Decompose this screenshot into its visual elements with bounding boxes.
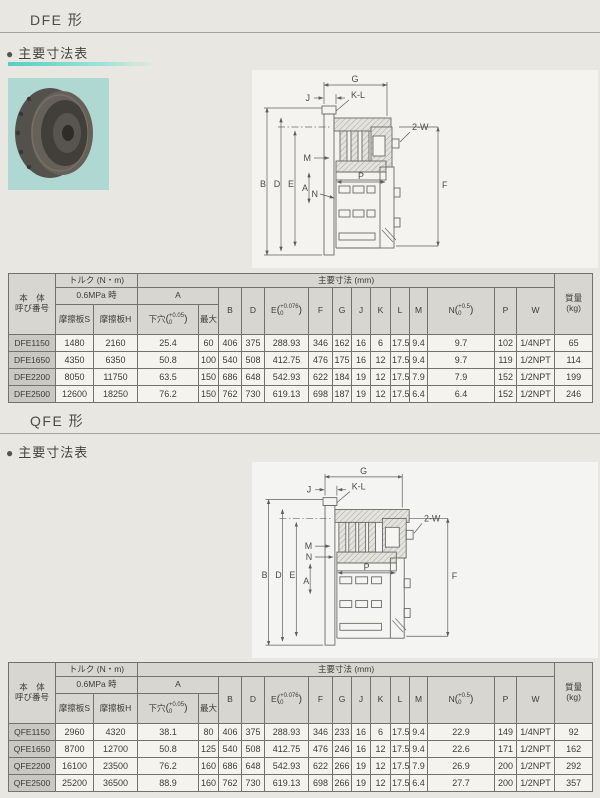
- dimension-value-cell: 7.9: [410, 758, 428, 775]
- dimension-value-cell: 16100: [56, 758, 94, 775]
- table-header: 本 体呼び番号 トルク (N・m) 主要寸法 (mm) 質量(kg) 0.6MP…: [9, 274, 593, 335]
- col-header-f: F: [309, 288, 333, 335]
- col-header-w: W: [517, 677, 555, 724]
- dimension-value-cell: 1/2NPT: [517, 775, 555, 792]
- col-header-n: N(+0.50): [428, 288, 495, 335]
- col-header-e: E(+0.0760): [265, 677, 309, 724]
- bullet-icon: ●: [6, 446, 14, 460]
- dimension-value-cell: 6.4: [410, 775, 428, 792]
- dimension-value-cell: 23500: [94, 758, 138, 775]
- dimension-value-cell: 152: [495, 386, 517, 403]
- dimension-value-cell: 11750: [94, 369, 138, 386]
- col-header-e: E(+0.0760): [265, 288, 309, 335]
- dimension-value-cell: 622: [309, 369, 333, 386]
- dimension-value-cell: 19: [352, 758, 371, 775]
- model-number-cell: DFE2500: [9, 386, 56, 403]
- table-row: QFE2200161002350076.2160686648542.936222…: [9, 758, 593, 775]
- col-header-b: B: [219, 288, 242, 335]
- dimension-value-cell: 508: [242, 352, 265, 369]
- dimension-value-cell: 25200: [56, 775, 94, 792]
- dimension-value-cell: 6: [371, 335, 391, 352]
- col-header-j: J: [352, 288, 371, 335]
- dimension-value-cell: 92: [555, 724, 593, 741]
- col-header-w: W: [517, 288, 555, 335]
- dim-label-p: P: [358, 171, 364, 181]
- dimension-value-cell: 9.4: [410, 352, 428, 369]
- dimension-value-cell: 2960: [56, 724, 94, 741]
- model-number-cell: QFE1150: [9, 724, 56, 741]
- dimension-value-cell: 12: [371, 775, 391, 792]
- table-row: DFE16504350635050.8100540508412.75476175…: [9, 352, 593, 369]
- dimension-value-cell: 6: [371, 724, 391, 741]
- dimension-value-cell: 200: [495, 758, 517, 775]
- dimension-value-cell: 50.8: [138, 741, 199, 758]
- dimension-value-cell: 508: [242, 741, 265, 758]
- dimension-value-cell: 27.7: [428, 775, 495, 792]
- dimension-value-cell: 12: [371, 758, 391, 775]
- col-header-j: J: [352, 677, 371, 724]
- part-outline: [278, 106, 400, 255]
- dimension-value-cell: 12: [371, 386, 391, 403]
- dimension-value-cell: 150: [199, 386, 219, 403]
- col-header-max: 最大: [199, 694, 219, 724]
- dimension-value-cell: 175: [333, 352, 352, 369]
- qfe-subheading-label: 主要寸法表: [18, 445, 88, 460]
- dimension-value-cell: 12600: [56, 386, 94, 403]
- dfe-drawing-svg: G J K-L 2-W M B D E A N P F: [252, 70, 598, 268]
- dim-label-2w: 2-W: [424, 513, 441, 523]
- dimension-value-cell: 412.75: [265, 741, 309, 758]
- dimension-value-cell: 7.9: [428, 369, 495, 386]
- col-header-model: 本 体呼び番号: [9, 663, 56, 724]
- table-row: QFE165087001270050.8125540508412.7547624…: [9, 741, 593, 758]
- dim-label-g: G: [360, 466, 367, 476]
- dimension-value-cell: 406: [219, 335, 242, 352]
- table-row: QFE2500252003650088.9160762730619.136982…: [9, 775, 593, 792]
- section-divider: [0, 32, 600, 33]
- table-row: DFE2500126001825076.2150762730619.136981…: [9, 386, 593, 403]
- dimension-value-cell: 540: [219, 352, 242, 369]
- dimension-value-cell: 100: [199, 352, 219, 369]
- dimension-value-cell: 698: [309, 775, 333, 792]
- table-header: 本 体呼び番号 トルク (N・m) 主要寸法 (mm) 質量(kg) 0.6MP…: [9, 663, 593, 724]
- dim-label-m: M: [304, 153, 312, 163]
- dimension-value-cell: 357: [555, 775, 593, 792]
- dimension-value-cell: 16: [352, 724, 371, 741]
- qfe-drawing-svg: G J K-L 2-W M N B D E A P F: [252, 462, 598, 658]
- table-row: QFE11502960432038.180406375288.933462331…: [9, 724, 593, 741]
- dimension-value-cell: 88.9: [138, 775, 199, 792]
- col-header-mass: 質量(kg): [555, 274, 593, 335]
- dfe-dimension-table: 本 体呼び番号 トルク (N・m) 主要寸法 (mm) 質量(kg) 0.6MP…: [8, 273, 593, 403]
- dim-label-n: N: [312, 189, 319, 199]
- dimension-value-cell: 1/2NPT: [517, 758, 555, 775]
- dimension-value-cell: 375: [242, 335, 265, 352]
- col-header-l: L: [391, 677, 410, 724]
- dimension-value-cell: 476: [309, 352, 333, 369]
- dimension-value-cell: 9.4: [410, 335, 428, 352]
- col-group-a: A: [138, 677, 219, 694]
- dim-label-n: N: [306, 552, 312, 562]
- dimension-value-cell: 17.5: [391, 758, 410, 775]
- dfe-dimension-drawing: G J K-L 2-W M B D E A N P F: [252, 70, 598, 268]
- dimension-value-cell: 17.5: [391, 775, 410, 792]
- qfe-dimension-table: 本 体呼び番号 トルク (N・m) 主要寸法 (mm) 質量(kg) 0.6MP…: [8, 662, 593, 792]
- dimension-value-cell: 150: [199, 369, 219, 386]
- model-number-cell: DFE2200: [9, 369, 56, 386]
- col-header-d: D: [242, 288, 265, 335]
- dimension-value-cell: 266: [333, 758, 352, 775]
- table-row: DFE11501480216025.460406375288.933461621…: [9, 335, 593, 352]
- dimension-value-cell: 16: [352, 352, 371, 369]
- dim-label-kl: K-L: [351, 90, 365, 100]
- dimension-value-cell: 233: [333, 724, 352, 741]
- dimension-value-cell: 80: [199, 724, 219, 741]
- col-header-friction-h: 摩擦板H: [94, 694, 138, 724]
- dimension-value-cell: 114: [555, 352, 593, 369]
- bullet-icon: ●: [6, 47, 14, 61]
- dimension-value-cell: 648: [242, 369, 265, 386]
- dimension-value-cell: 162: [333, 335, 352, 352]
- col-header-k: K: [371, 677, 391, 724]
- col-header-b: B: [219, 677, 242, 724]
- dimension-value-cell: 17.5: [391, 724, 410, 741]
- dimension-value-cell: 19: [352, 369, 371, 386]
- dimension-value-cell: 686: [219, 758, 242, 775]
- dimension-value-cell: 288.93: [265, 724, 309, 741]
- col-header-friction-s: 摩擦板S: [56, 305, 94, 335]
- clutch-photo-image: [8, 78, 109, 190]
- qfe-section-title: QFE 形: [30, 411, 84, 431]
- col-header-mass: 質量(kg): [555, 663, 593, 724]
- dfe-subheading-label: 主要寸法表: [18, 46, 88, 61]
- dimension-value-cell: 17.5: [391, 352, 410, 369]
- dimension-value-cell: 648: [242, 758, 265, 775]
- dim-label-m: M: [305, 541, 312, 551]
- dimension-value-cell: 149: [495, 724, 517, 741]
- dimension-value-cell: 346: [309, 724, 333, 741]
- dimension-value-cell: 1/2NPT: [517, 741, 555, 758]
- dimension-value-cell: 152: [495, 369, 517, 386]
- dimension-value-cell: 12: [371, 741, 391, 758]
- teal-underline: [8, 62, 156, 66]
- dim-label-b: B: [260, 179, 266, 189]
- dimension-value-cell: 1480: [56, 335, 94, 352]
- dimension-value-cell: 1/4NPT: [517, 335, 555, 352]
- dimension-value-cell: 1/4NPT: [517, 724, 555, 741]
- col-header-max: 最大: [199, 305, 219, 335]
- col-header-m: M: [410, 677, 428, 724]
- dimension-value-cell: 7.9: [410, 369, 428, 386]
- dim-label-d: D: [275, 570, 281, 580]
- dimension-value-cell: 1/2NPT: [517, 352, 555, 369]
- dimension-value-cell: 9.4: [410, 741, 428, 758]
- dimension-value-cell: 762: [219, 775, 242, 792]
- dimension-value-cell: 187: [333, 386, 352, 403]
- dimension-value-cell: 540: [219, 741, 242, 758]
- model-number-cell: QFE1650: [9, 741, 56, 758]
- col-header-k: K: [371, 288, 391, 335]
- dimension-value-cell: 266: [333, 775, 352, 792]
- dim-label-a: A: [302, 183, 308, 193]
- dimension-value-cell: 2160: [94, 335, 138, 352]
- table-body: DFE11501480216025.460406375288.933461621…: [9, 335, 593, 403]
- col-group-pressure: 0.6MPa 時: [56, 677, 138, 694]
- dimension-value-cell: 6.4: [428, 386, 495, 403]
- dim-label-g: G: [351, 74, 358, 84]
- col-header-g: G: [333, 677, 352, 724]
- dimension-value-cell: 17.5: [391, 386, 410, 403]
- dimension-value-cell: 698: [309, 386, 333, 403]
- dimension-value-cell: 406: [219, 724, 242, 741]
- dimension-value-cell: 160: [199, 758, 219, 775]
- dimension-value-cell: 17.5: [391, 369, 410, 386]
- dimension-value-cell: 12: [371, 369, 391, 386]
- dimension-value-cell: 246: [333, 741, 352, 758]
- dimension-value-cell: 730: [242, 386, 265, 403]
- dimension-value-cell: 19: [352, 386, 371, 403]
- dimension-value-cell: 1/2NPT: [517, 386, 555, 403]
- dimension-value-cell: 119: [495, 352, 517, 369]
- dimension-value-cell: 63.5: [138, 369, 199, 386]
- dimension-value-cell: 375: [242, 724, 265, 741]
- col-header-p: P: [495, 288, 517, 335]
- dimension-value-cell: 60: [199, 335, 219, 352]
- dimension-value-cell: 160: [199, 775, 219, 792]
- dimension-value-cell: 25.4: [138, 335, 199, 352]
- dim-label-2w: 2-W: [412, 122, 429, 132]
- col-header-m: M: [410, 288, 428, 335]
- dimension-value-cell: 292: [555, 758, 593, 775]
- dimension-value-cell: 26.9: [428, 758, 495, 775]
- model-number-cell: QFE2200: [9, 758, 56, 775]
- dimension-value-cell: 200: [495, 775, 517, 792]
- dimension-value-cell: 8700: [56, 741, 94, 758]
- table-body: QFE11502960432038.180406375288.933462331…: [9, 724, 593, 792]
- dimension-value-cell: 6350: [94, 352, 138, 369]
- dim-label-j: J: [307, 485, 311, 495]
- dimension-value-cell: 4320: [94, 724, 138, 741]
- col-header-l: L: [391, 288, 410, 335]
- dimension-value-cell: 18250: [94, 386, 138, 403]
- dimension-value-cell: 76.2: [138, 758, 199, 775]
- dimension-value-cell: 476: [309, 741, 333, 758]
- col-header-pilot-hole: 下穴(+0.050): [138, 305, 199, 335]
- col-header-friction-s: 摩擦板S: [56, 694, 94, 724]
- dim-label-e: E: [289, 570, 295, 580]
- dim-label-p: P: [364, 562, 370, 572]
- catalog-page: DFE 形 ●主要寸法表: [0, 0, 600, 798]
- table-row: DFE220080501175063.5150686648542.9362218…: [9, 369, 593, 386]
- dimension-value-cell: 6.4: [410, 386, 428, 403]
- dimension-value-cell: 17.5: [391, 741, 410, 758]
- col-header-pilot-hole: 下穴(+0.050): [138, 694, 199, 724]
- qfe-subheading: ●主要寸法表: [6, 442, 88, 461]
- dimension-value-cell: 102: [495, 335, 517, 352]
- col-group-a: A: [138, 288, 219, 305]
- dimension-value-cell: 199: [555, 369, 593, 386]
- col-group-torque: トルク (N・m): [56, 274, 138, 288]
- model-number-cell: DFE1150: [9, 335, 56, 352]
- dimension-value-cell: 19: [352, 775, 371, 792]
- col-header-n: N(+0.50): [428, 677, 495, 724]
- dim-label-d: D: [274, 179, 281, 189]
- qfe-dimension-drawing: G J K-L 2-W M N B D E A P F: [252, 462, 598, 658]
- dimension-value-cell: 184: [333, 369, 352, 386]
- dimension-value-cell: 50.8: [138, 352, 199, 369]
- dimension-value-cell: 38.1: [138, 724, 199, 741]
- dimension-value-cell: 22.6: [428, 741, 495, 758]
- part-outline: [279, 498, 413, 645]
- dimension-value-cell: 288.93: [265, 335, 309, 352]
- dimension-value-cell: 346: [309, 335, 333, 352]
- col-header-g: G: [333, 288, 352, 335]
- dimension-value-cell: 162: [555, 741, 593, 758]
- dimension-value-cell: 542.93: [265, 758, 309, 775]
- dimension-value-cell: 17.5: [391, 335, 410, 352]
- dimension-value-cell: 619.13: [265, 775, 309, 792]
- col-group-main-dims: 主要寸法 (mm): [138, 663, 555, 677]
- dim-label-f: F: [452, 571, 458, 581]
- col-header-f: F: [309, 677, 333, 724]
- dimension-value-cell: 22.9: [428, 724, 495, 741]
- col-group-main-dims: 主要寸法 (mm): [138, 274, 555, 288]
- dimension-value-cell: 36500: [94, 775, 138, 792]
- dimension-value-cell: 4350: [56, 352, 94, 369]
- dimension-value-cell: 12: [371, 352, 391, 369]
- dimension-value-cell: 686: [219, 369, 242, 386]
- dimension-value-cell: 542.93: [265, 369, 309, 386]
- col-header-p: P: [495, 677, 517, 724]
- dimension-value-cell: 9.4: [410, 724, 428, 741]
- dimension-value-cell: 619.13: [265, 386, 309, 403]
- dimension-value-cell: 730: [242, 775, 265, 792]
- dimension-value-cell: 246: [555, 386, 593, 403]
- dim-label-j: J: [306, 93, 311, 103]
- dim-label-kl: K-L: [352, 482, 366, 492]
- dim-label-b: B: [262, 570, 268, 580]
- dimension-value-cell: 171: [495, 741, 517, 758]
- col-group-pressure: 0.6MPa 時: [56, 288, 138, 305]
- dimension-value-cell: 9.7: [428, 352, 495, 369]
- dimension-value-cell: 16: [352, 335, 371, 352]
- dimension-value-cell: 76.2: [138, 386, 199, 403]
- dimension-value-cell: 412.75: [265, 352, 309, 369]
- col-header-friction-h: 摩擦板H: [94, 305, 138, 335]
- col-group-torque: トルク (N・m): [56, 663, 138, 677]
- dim-label-f: F: [442, 180, 448, 190]
- dimension-value-cell: 65: [555, 335, 593, 352]
- model-number-cell: QFE2500: [9, 775, 56, 792]
- dfe-subheading: ●主要寸法表: [6, 43, 88, 62]
- dimension-value-cell: 762: [219, 386, 242, 403]
- section-divider: [0, 433, 600, 434]
- dimension-value-cell: 1/2NPT: [517, 369, 555, 386]
- model-number-cell: DFE1650: [9, 352, 56, 369]
- dim-label-a: A: [303, 576, 309, 586]
- dimension-value-cell: 125: [199, 741, 219, 758]
- dim-label-e: E: [288, 179, 294, 189]
- dimension-value-cell: 9.7: [428, 335, 495, 352]
- dimension-value-cell: 12700: [94, 741, 138, 758]
- col-header-d: D: [242, 677, 265, 724]
- dimension-value-cell: 8050: [56, 369, 94, 386]
- product-photo: [8, 78, 109, 190]
- col-header-model: 本 体呼び番号: [9, 274, 56, 335]
- dimension-value-cell: 622: [309, 758, 333, 775]
- dimension-value-cell: 16: [352, 741, 371, 758]
- dfe-section-title: DFE 形: [30, 10, 83, 30]
